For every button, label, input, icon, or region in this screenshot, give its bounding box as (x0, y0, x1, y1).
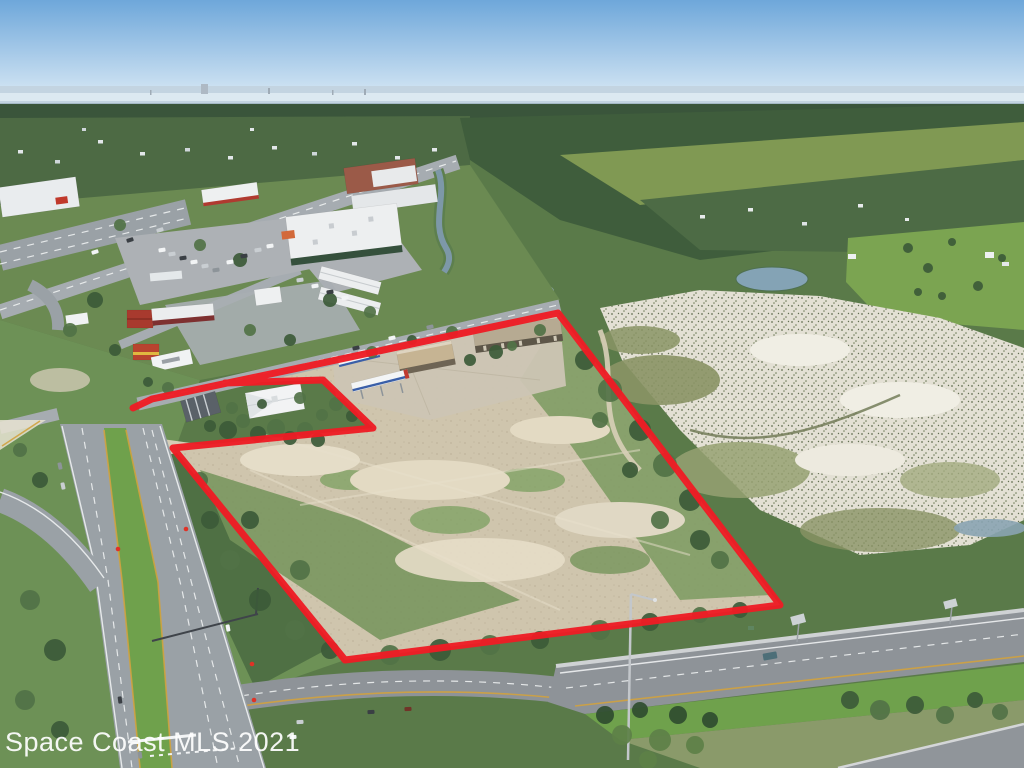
tree (226, 402, 238, 414)
dirt-patch (30, 368, 90, 392)
scrub-patch (410, 506, 490, 534)
vehicle (367, 710, 374, 714)
tree (63, 323, 77, 337)
tree (592, 412, 608, 428)
tree (534, 324, 546, 336)
tree (489, 345, 503, 359)
tree (257, 399, 267, 409)
water-streak (0, 93, 1024, 101)
tree (204, 420, 216, 432)
tree (686, 736, 704, 754)
watermark: Space Coast MLS 2021 (5, 727, 300, 757)
tree (870, 700, 890, 720)
tree (109, 344, 121, 356)
tree (87, 292, 103, 308)
tree (236, 414, 250, 428)
tree (632, 702, 648, 718)
vehicle (404, 707, 411, 711)
house (312, 152, 317, 156)
tree (906, 696, 924, 714)
house (140, 152, 145, 156)
sky-layer (0, 0, 1024, 108)
tree (998, 254, 1006, 262)
tree (290, 560, 310, 580)
tree (244, 324, 256, 336)
tree (194, 239, 206, 251)
tree (711, 551, 729, 569)
traffic-signal (252, 698, 257, 703)
traffic-signal (250, 662, 255, 667)
marsh-olive-patch (600, 326, 680, 354)
red-roof-restaurant (127, 310, 153, 328)
pond-far-right (954, 519, 1024, 537)
launch-tower (150, 90, 152, 95)
marsh-sand-bright (795, 444, 905, 476)
tree (285, 620, 305, 640)
tree (596, 706, 614, 724)
house (1002, 262, 1009, 266)
tree (464, 354, 476, 366)
tree (20, 590, 40, 610)
tree (649, 729, 671, 751)
aerial-scene: Space Coast MLS 2021 (0, 0, 1024, 768)
tree (13, 443, 27, 457)
marsh-sand-bright (750, 334, 850, 366)
tree (219, 421, 237, 439)
house (352, 142, 357, 146)
house (802, 222, 807, 226)
marsh-olive-patch (900, 462, 1000, 498)
house (272, 146, 277, 150)
house (985, 252, 994, 258)
street-light-head (653, 598, 657, 602)
launch-tower (364, 89, 366, 95)
tree (284, 334, 296, 346)
tree (622, 462, 638, 478)
house (185, 148, 190, 152)
tree (923, 263, 933, 273)
tree (973, 281, 983, 291)
tree (32, 472, 48, 488)
house (905, 218, 909, 221)
aerial-listing-photo: Space Coast MLS 2021 (0, 0, 1024, 768)
tree (690, 530, 710, 550)
tree (948, 238, 956, 246)
tree (15, 690, 35, 710)
tree (507, 341, 517, 351)
tree (249, 589, 271, 611)
tree (294, 392, 306, 404)
tree (220, 550, 240, 570)
tree (914, 288, 922, 296)
sky (0, 0, 1024, 100)
tree (143, 377, 153, 387)
traffic-signal (184, 527, 189, 532)
small-hip-building (254, 286, 282, 305)
house (395, 156, 400, 160)
house (700, 215, 705, 219)
vab-building (201, 84, 208, 94)
tree (241, 511, 259, 529)
house (250, 128, 254, 131)
tree (651, 511, 669, 529)
green-sign (748, 626, 754, 630)
launch-tower (268, 88, 270, 94)
tree (936, 706, 954, 724)
tree (841, 691, 859, 709)
house (98, 140, 103, 144)
house (228, 156, 233, 160)
house (432, 148, 437, 152)
traffic-signal (116, 547, 121, 552)
sand-patch (240, 444, 360, 476)
scrub-patch (570, 546, 650, 574)
tree (316, 409, 328, 421)
launch-tower (332, 90, 334, 95)
tree (992, 704, 1008, 720)
tree (903, 243, 913, 253)
tree (669, 706, 687, 724)
tree (938, 292, 946, 300)
house (82, 128, 86, 131)
tree (114, 219, 126, 231)
tree (612, 725, 632, 745)
tree (967, 692, 983, 708)
house (858, 204, 863, 208)
marsh-olive-patch (800, 508, 960, 552)
tree (364, 306, 376, 318)
vehicle (296, 720, 303, 724)
house (848, 254, 856, 259)
tree (44, 639, 66, 661)
house (18, 150, 23, 154)
tree (323, 293, 337, 307)
tree (702, 712, 718, 728)
golf-pond (736, 267, 808, 291)
tree (201, 511, 219, 529)
sand-patch (395, 538, 565, 582)
house (55, 160, 60, 164)
house (748, 208, 753, 212)
